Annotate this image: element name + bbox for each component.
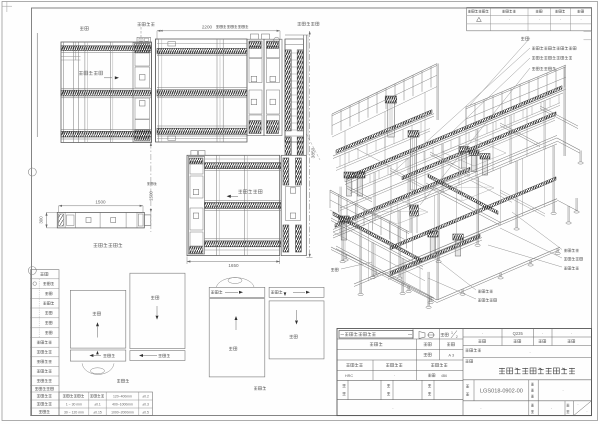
svg-text:LGS018-0902-00: LGS018-0902-00 — [480, 388, 523, 394]
svg-text:±0.1: ±0.1 — [94, 402, 101, 406]
svg-text:1500: 1500 — [95, 199, 106, 204]
svg-text:1000~2000mm: 1000~2000mm — [111, 410, 134, 414]
svg-text:·: · — [571, 331, 572, 336]
svg-text:·: · — [551, 406, 552, 411]
svg-text:·: · — [392, 406, 393, 411]
svg-text:·: · — [480, 406, 481, 411]
svg-text:1: 1 — [451, 331, 453, 335]
svg-text:1 ~ 30 mm: 1 ~ 30 mm — [66, 402, 82, 406]
svg-text:·: · — [542, 331, 543, 336]
svg-text:±0.2: ±0.2 — [142, 394, 149, 398]
svg-text:120~400mm: 120~400mm — [113, 394, 132, 398]
svg-text:·: · — [577, 403, 578, 407]
svg-text:3850: 3850 — [311, 147, 317, 158]
svg-text:2200: 2200 — [202, 25, 213, 30]
svg-text:·: · — [586, 410, 587, 414]
svg-text:300: 300 — [39, 216, 44, 224]
svg-text:Q235: Q235 — [513, 331, 524, 336]
svg-text:·: · — [529, 350, 530, 355]
svg-text:·: · — [580, 17, 581, 22]
svg-text:1650: 1650 — [228, 263, 239, 268]
svg-text:HRC: HRC — [345, 374, 353, 378]
svg-text:A 3: A 3 — [448, 353, 455, 358]
svg-text:400~1000mm: 400~1000mm — [112, 402, 133, 406]
svg-text:·: · — [509, 17, 510, 22]
svg-text:1500: 1500 — [148, 191, 153, 201]
svg-text:±0.3: ±0.3 — [142, 402, 149, 406]
svg-text:·: · — [560, 17, 561, 22]
svg-text:4B6: 4B6 — [441, 374, 447, 378]
svg-text:±0.15: ±0.15 — [93, 410, 102, 414]
svg-text:·: · — [482, 331, 483, 336]
svg-text:·: · — [539, 17, 540, 22]
svg-text:·: · — [394, 373, 395, 378]
svg-text:·: · — [562, 388, 563, 393]
svg-text:30 ~ 120 mm: 30 ~ 120 mm — [64, 410, 84, 414]
svg-text:2: 2 — [456, 335, 458, 339]
svg-text:±0.5: ±0.5 — [142, 410, 149, 414]
